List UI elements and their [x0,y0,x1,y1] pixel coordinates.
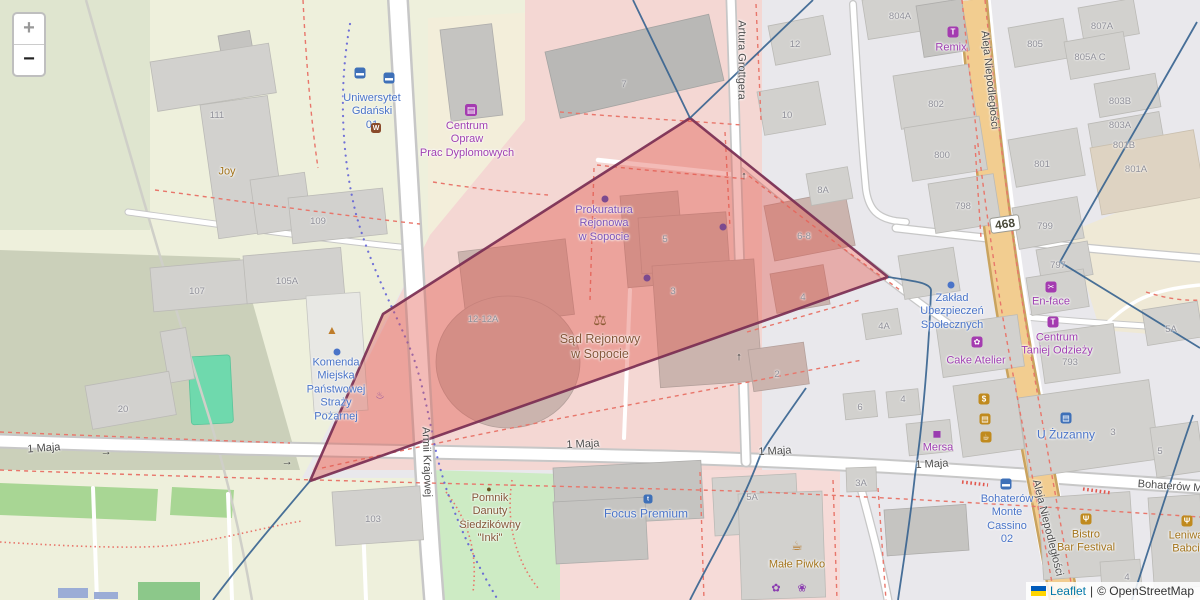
house-number: 103 [365,514,381,526]
house-number: 4 [900,394,905,406]
house-number: 5 [662,234,667,246]
house-number: 6-8 [797,231,811,243]
house-number: 4 [800,292,805,304]
ukraine-flag-icon [1031,586,1046,596]
poi-prokuratura: Prokuratura Rejonowa w Sopocie [575,204,632,244]
street-1-maja-east: 1 Maja [915,457,949,472]
poi-male-piwko: Małe Piwko [769,558,825,571]
house-number: 807A [1091,21,1113,33]
poi-en-face: En-face [1032,295,1070,308]
bus-stop-icon: ▬ [1001,479,1012,490]
one-way-arrow-icon: ↑ [741,170,747,182]
poi-cake-atelier: Cake Atelier [946,354,1005,367]
street-1-maja-center: 1 Maja [566,437,600,452]
flower-shop-icon: ✿ [771,582,780,595]
bus-stop-icon: ▬ [355,68,366,79]
house-number: 5A [1165,324,1177,336]
house-number: 12-12A [468,314,499,326]
house-number: 109 [310,216,326,228]
one-way-arrow-icon: → [100,446,111,458]
street-1-maja-west: 1 Maja [27,441,61,457]
poi-centrum-taniej-odziezy: Centrum Taniej Odzieży [1021,332,1093,359]
poi-zaklad-ubezpieczen: Zakład Ubezpieczeń Społecznych [920,292,984,332]
one-way-arrow-icon: → [281,456,292,468]
house-number: 5 [1157,446,1162,458]
poi-dot-icon [948,282,955,289]
house-number: 793 [1062,357,1078,369]
zoom-out-button[interactable]: − [14,45,44,75]
house-number: 105A [276,276,298,288]
copy-shop-icon: ▤ [465,104,477,116]
tshirt-shop-icon: T [1048,317,1059,328]
one-way-arrow-icon: ↑ [736,351,742,363]
poi-sad-rejonowy: Sąd Rejonowy w Sopocie [560,332,641,363]
poi-remix: Remix [935,41,966,54]
label-layer: 1 Maja1 Maja1 Maja1 MajaBohaterów MArmii… [0,0,1200,600]
house-number: 801B [1113,140,1135,152]
house-number: 804A [889,11,911,23]
poi-u-zuzanny: U Żuzanny [1037,428,1095,443]
street-artura-grottgera: Artura Grottgera [734,20,747,99]
house-number: 3 [670,286,675,298]
shop-icon: ▤ [1061,413,1072,424]
poi-leniwa-babcia: Leniwa Babci [1169,530,1200,557]
zoom-control: + − [12,12,46,77]
shop-icon: ▤ [980,414,991,425]
zoom-in-button[interactable]: + [14,14,44,45]
leaflet-link[interactable]: Leaflet [1050,584,1086,598]
restaurant-icon: Ψ [1081,514,1092,525]
house-number: 107 [189,286,205,298]
bus-stop-icon: ▬ [384,73,395,84]
poi-focus-premium: Focus Premium [604,507,688,522]
house-number: 5A [746,492,758,504]
house-number: 6 [857,402,862,414]
fire-station-icon: ▲ [326,323,338,337]
atm-icon: $ [979,394,990,405]
street-1-maja-center2: 1 Maja [758,444,792,459]
house-number: 8A [817,185,829,197]
beer-icon: ☕ [791,538,803,554]
street-armii-krajowej: Armii Krajowej [418,427,434,498]
house-number: 800 [934,150,950,162]
poi-dot-icon [602,196,609,203]
poi-bistro-bar-festival: Bistro Bar Festival [1057,529,1115,556]
house-number: 801 [1034,159,1050,171]
street-aleja-niepodleglosci-north: Aleja Niepodległości [977,30,1001,130]
house-number: 111 [210,110,224,122]
house-number: 803B [1109,96,1131,108]
poi-dot-icon [334,349,341,356]
tshirt-shop-icon: T [948,27,959,38]
monument-icon: ● [486,484,491,494]
cupcake-icon: ❀ [797,582,806,595]
map-canvas[interactable]: 1 Maja1 Maja1 Maja1 MajaBohaterów MArmii… [0,0,1200,600]
house-number: 805 [1027,39,1043,51]
tram-stop-icon: W [371,123,381,133]
house-number: 3A [855,478,867,490]
poi-komenda-strazy: Komenda Miejska Państwowej Straży Pożarn… [307,356,366,423]
house-number: 802 [928,99,944,111]
house-number: 3 [1110,427,1115,439]
house-number: 4A [878,321,890,333]
house-number: 801A [1125,164,1147,176]
fountain-icon: ♨ [376,391,385,402]
poi-dot-icon [644,275,651,282]
scales-of-justice-icon: ⚖ [593,311,606,329]
osm-attribution-link[interactable]: © OpenStreetMap [1097,584,1194,598]
poi-pomnik-inki: Pomnik Danuty Siedzikówny "Inki" [459,492,520,546]
poi-mersa: Mersa [923,441,954,454]
cafe-icon: ☕ [981,432,992,443]
poi-centrum-opraw: Centrum Opraw Prac Dyplomowych [420,120,514,160]
beauty-salon-icon: ✂ [1046,282,1057,293]
house-number: 803A [1109,120,1131,132]
house-number: 797 [1050,260,1066,272]
restaurant-icon: Ψ [1182,516,1193,527]
house-number: 20 [118,404,129,416]
attribution-separator: | [1090,584,1093,598]
house-number: 799 [1037,221,1053,233]
attribution-bar: Leaflet | © OpenStreetMap [1026,582,1200,600]
house-number: 2 [774,369,779,381]
poi-joy: Joy [218,165,235,178]
street-bohaterow-monte-cassino: Bohaterów M [1137,478,1200,496]
house-number: 798 [955,201,971,213]
house-number: 10 [782,110,793,122]
house-number: 805A C [1074,52,1105,64]
house-number: 7 [621,79,626,91]
poi-dot-icon [720,224,727,231]
poi-bohaterow-monte-cassino-02: Bohaterów Monte Cassino 02 [981,493,1034,547]
optician-icon: t [644,495,653,504]
cupcake-icon: ✿ [972,337,983,348]
awning-shop-icon: ▅ [934,428,941,439]
house-number: 12 [790,39,801,51]
